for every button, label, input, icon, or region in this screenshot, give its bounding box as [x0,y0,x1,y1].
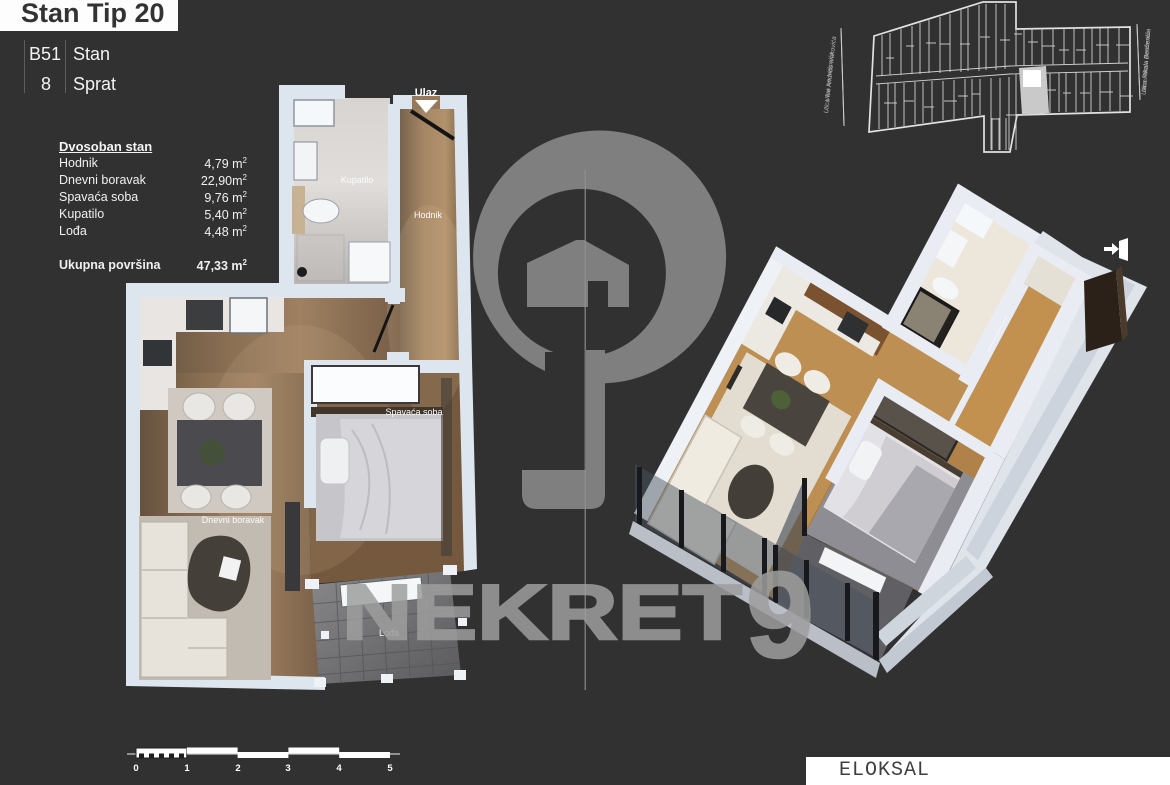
svg-text:Ulaz: Ulaz [415,87,438,99]
svg-text:0: 0 [133,763,138,774]
svg-text:Dnevni boravak: Dnevni boravak [202,515,265,525]
svg-text:NEKRET: NEKRET [342,568,742,656]
svg-text:Spavaća soba: Spavaća soba [385,407,442,417]
svg-text:Ulica Rikala Benčenića: Ulica Rikala Benčenića [1141,28,1153,95]
svg-text:1: 1 [184,763,190,774]
svg-text:Ulica Ive Andrića Ivakovića: Ulica Ive Andrića Ivakovića [823,36,838,114]
svg-text:5: 5 [387,763,393,774]
svg-text:Kupatilo: Kupatilo [341,175,374,185]
svg-text:Hodnik: Hodnik [414,210,443,220]
svg-text:3: 3 [285,763,290,774]
svg-text:4: 4 [336,763,342,774]
svg-text:9: 9 [746,547,814,683]
svg-text:2: 2 [235,763,240,774]
